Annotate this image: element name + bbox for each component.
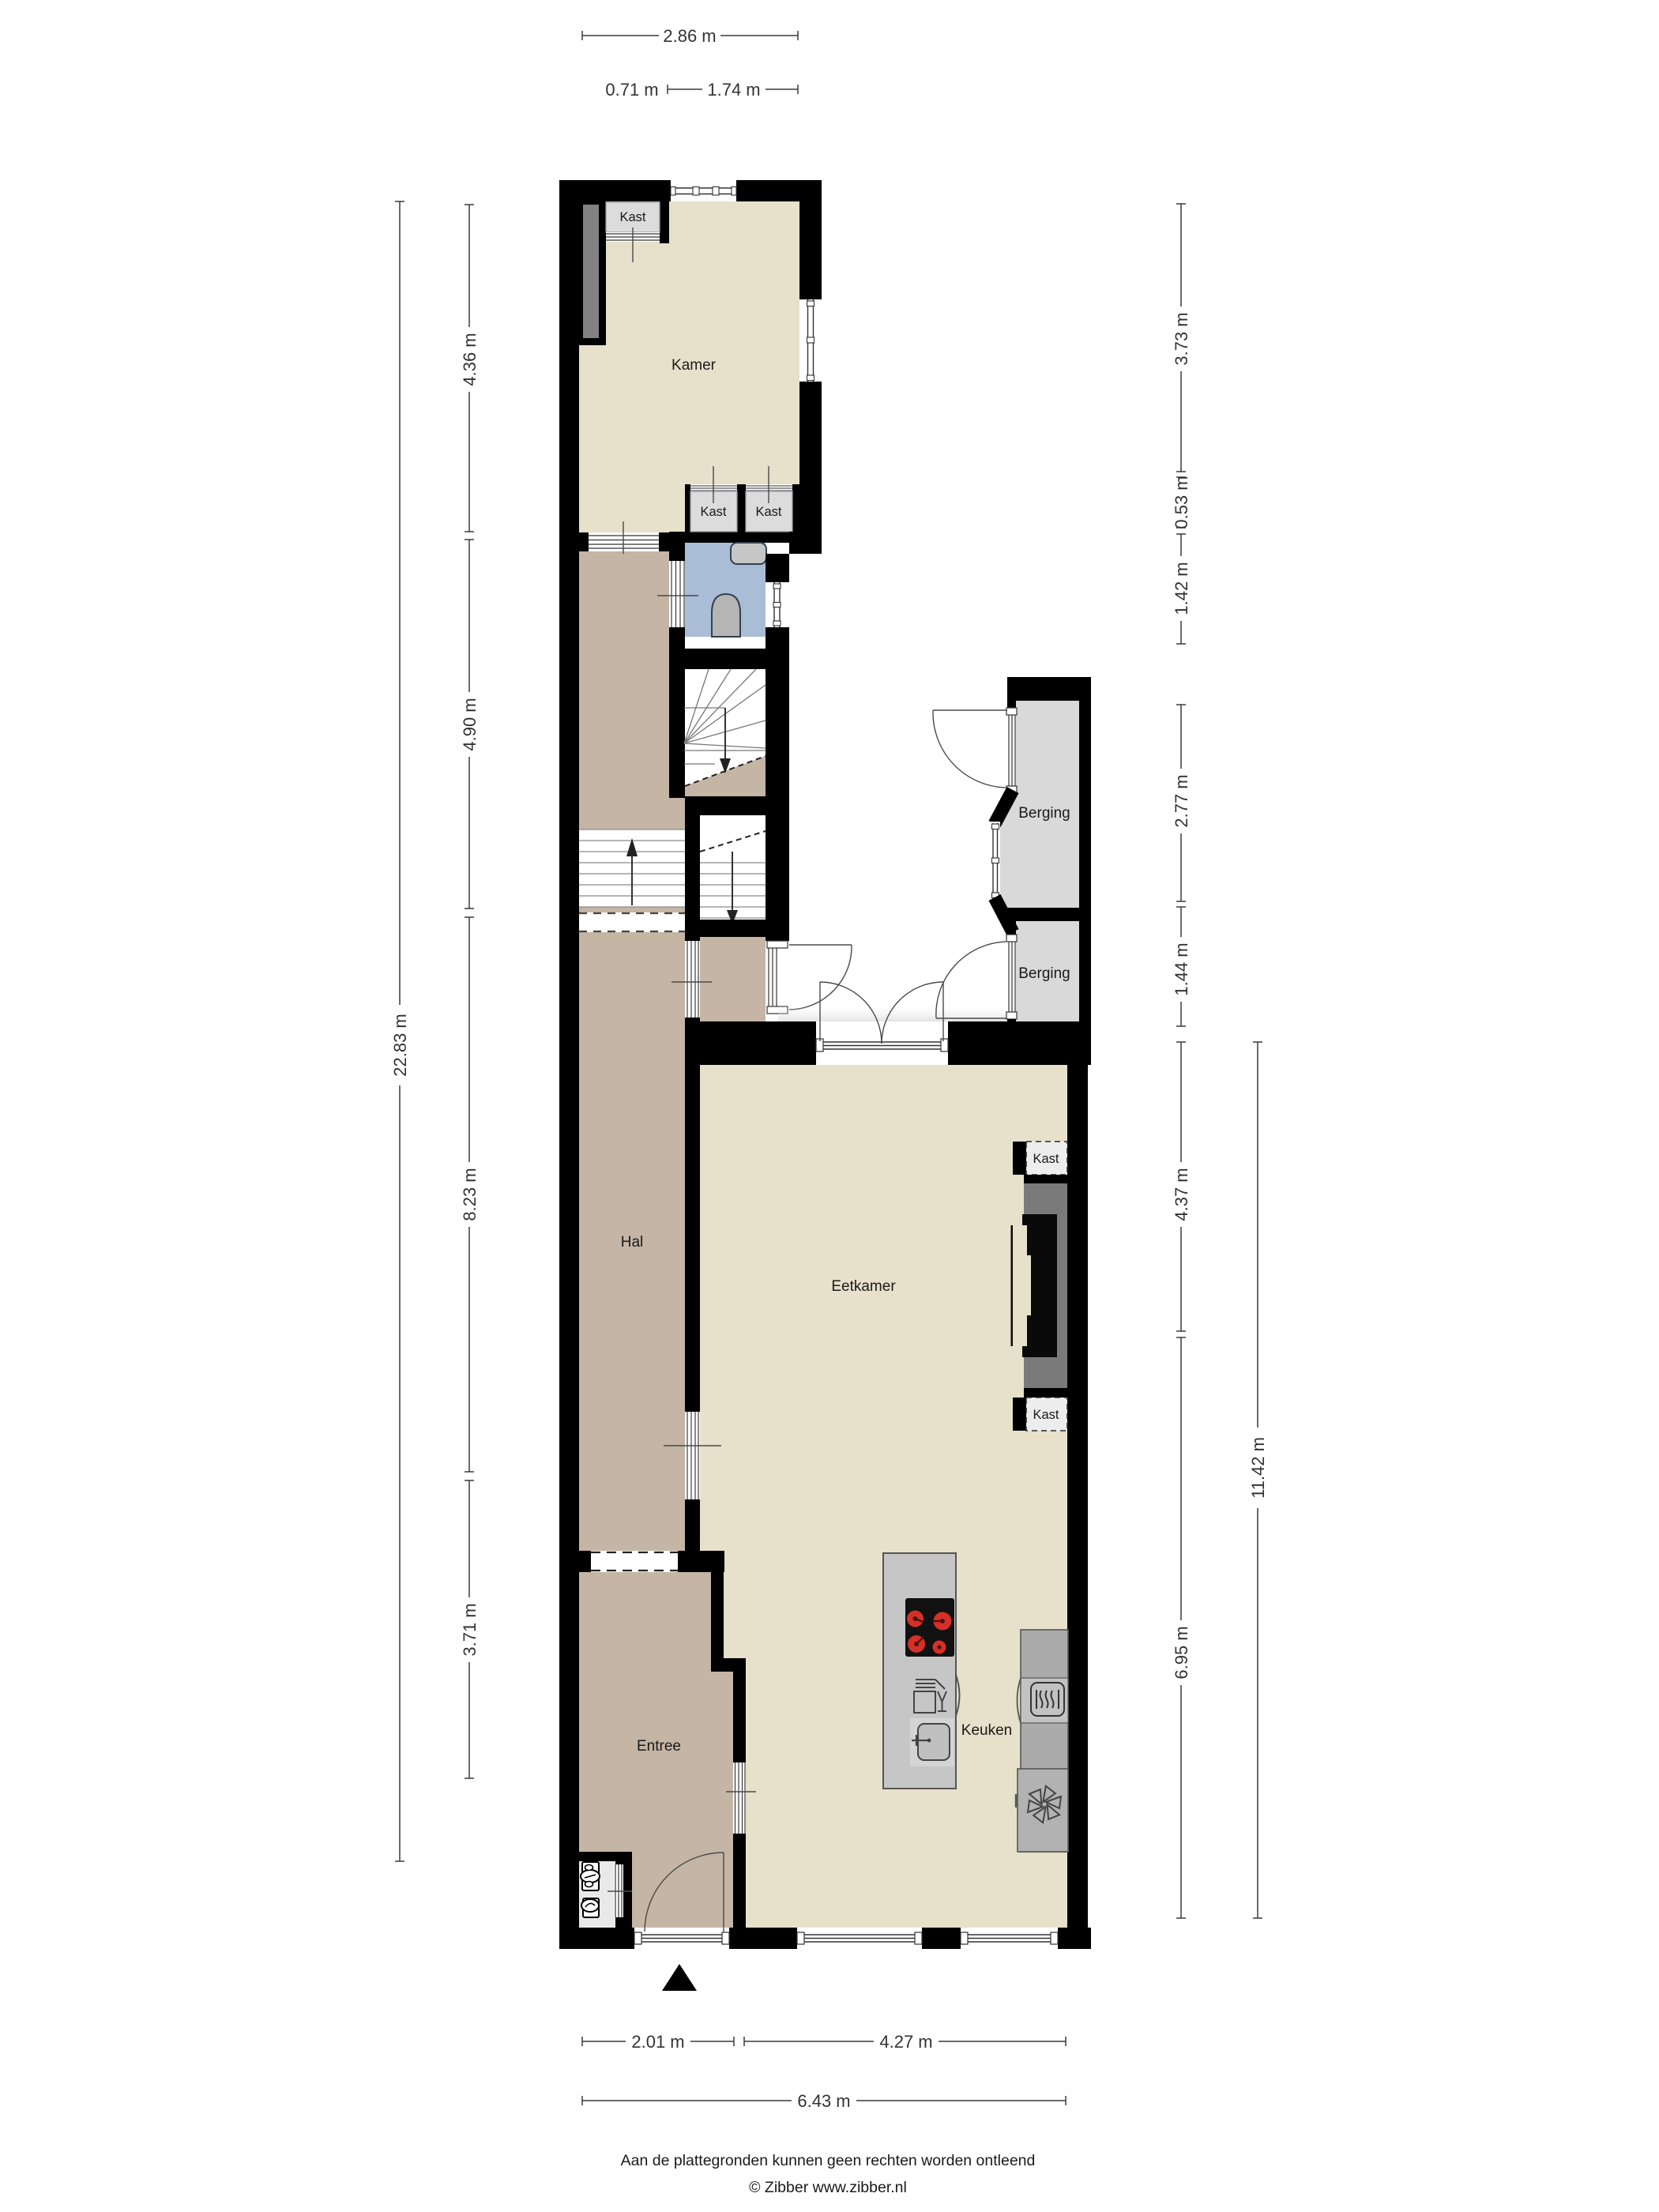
- svg-text:8.23 m: 8.23 m: [460, 1168, 480, 1221]
- svg-text:Keuken: Keuken: [961, 1722, 1012, 1739]
- svg-text:1.74 m: 1.74 m: [707, 80, 760, 100]
- svg-text:4.27 m: 4.27 m: [879, 2032, 932, 2052]
- svg-text:Berging: Berging: [1018, 965, 1070, 982]
- svg-text:2.86 m: 2.86 m: [663, 26, 716, 46]
- svg-text:Kamer: Kamer: [671, 357, 717, 374]
- svg-text:Berging: Berging: [1018, 805, 1070, 822]
- svg-text:2.01 m: 2.01 m: [631, 2032, 684, 2052]
- svg-text:1.44 m: 1.44 m: [1172, 942, 1191, 995]
- svg-text:Kast: Kast: [700, 505, 726, 519]
- svg-text:Entree: Entree: [637, 1738, 681, 1755]
- svg-text:Kast: Kast: [755, 505, 781, 519]
- svg-text:3.71 m: 3.71 m: [460, 1603, 480, 1656]
- svg-text:Hal: Hal: [621, 1234, 644, 1251]
- svg-text:Kast: Kast: [1033, 1152, 1059, 1166]
- svg-text:6.95 m: 6.95 m: [1172, 1626, 1191, 1679]
- svg-text:11.42 m: 11.42 m: [1248, 1437, 1268, 1499]
- svg-text:22.83 m: 22.83 m: [390, 1014, 410, 1077]
- svg-text:4.37 m: 4.37 m: [1172, 1168, 1191, 1221]
- svg-text:4.36 m: 4.36 m: [460, 333, 480, 386]
- svg-text:0.53 m: 0.53 m: [1172, 476, 1191, 529]
- svg-text:2.77 m: 2.77 m: [1172, 774, 1191, 827]
- svg-text:6.43 m: 6.43 m: [797, 2091, 850, 2111]
- svg-text:1.42 m: 1.42 m: [1172, 562, 1191, 615]
- svg-text:0.71 m: 0.71 m: [605, 80, 658, 100]
- svg-text:Kast: Kast: [619, 210, 645, 224]
- svg-text:Kast: Kast: [1033, 1408, 1059, 1422]
- svg-text:4.90 m: 4.90 m: [460, 698, 480, 750]
- svg-text:3.73 m: 3.73 m: [1172, 312, 1191, 365]
- svg-text:© Zibber www.zibber.nl: © Zibber www.zibber.nl: [749, 2179, 907, 2196]
- svg-text:Aan de plattegronden kunnen ge: Aan de plattegronden kunnen geen rechten…: [621, 2152, 1036, 2169]
- svg-text:Eetkamer: Eetkamer: [831, 1278, 896, 1295]
